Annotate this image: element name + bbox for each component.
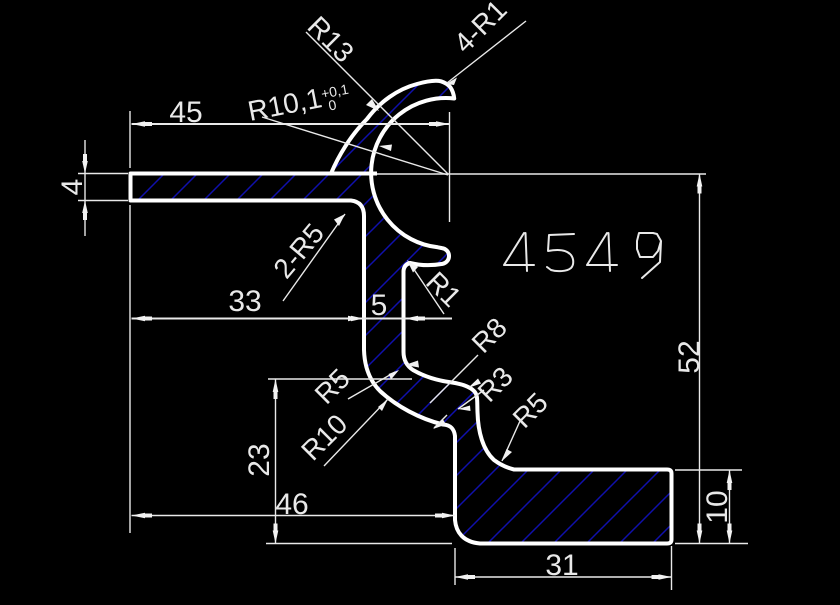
svg-text:52: 52: [673, 340, 706, 373]
svg-text:5: 5: [371, 289, 388, 322]
svg-text:33: 33: [228, 285, 261, 318]
svg-text:31: 31: [545, 549, 578, 582]
svg-text:46: 46: [275, 488, 308, 521]
svg-text:10: 10: [701, 490, 734, 523]
svg-text:45: 45: [169, 96, 202, 129]
svg-text:23: 23: [243, 443, 276, 476]
svg-text:4: 4: [56, 179, 89, 196]
